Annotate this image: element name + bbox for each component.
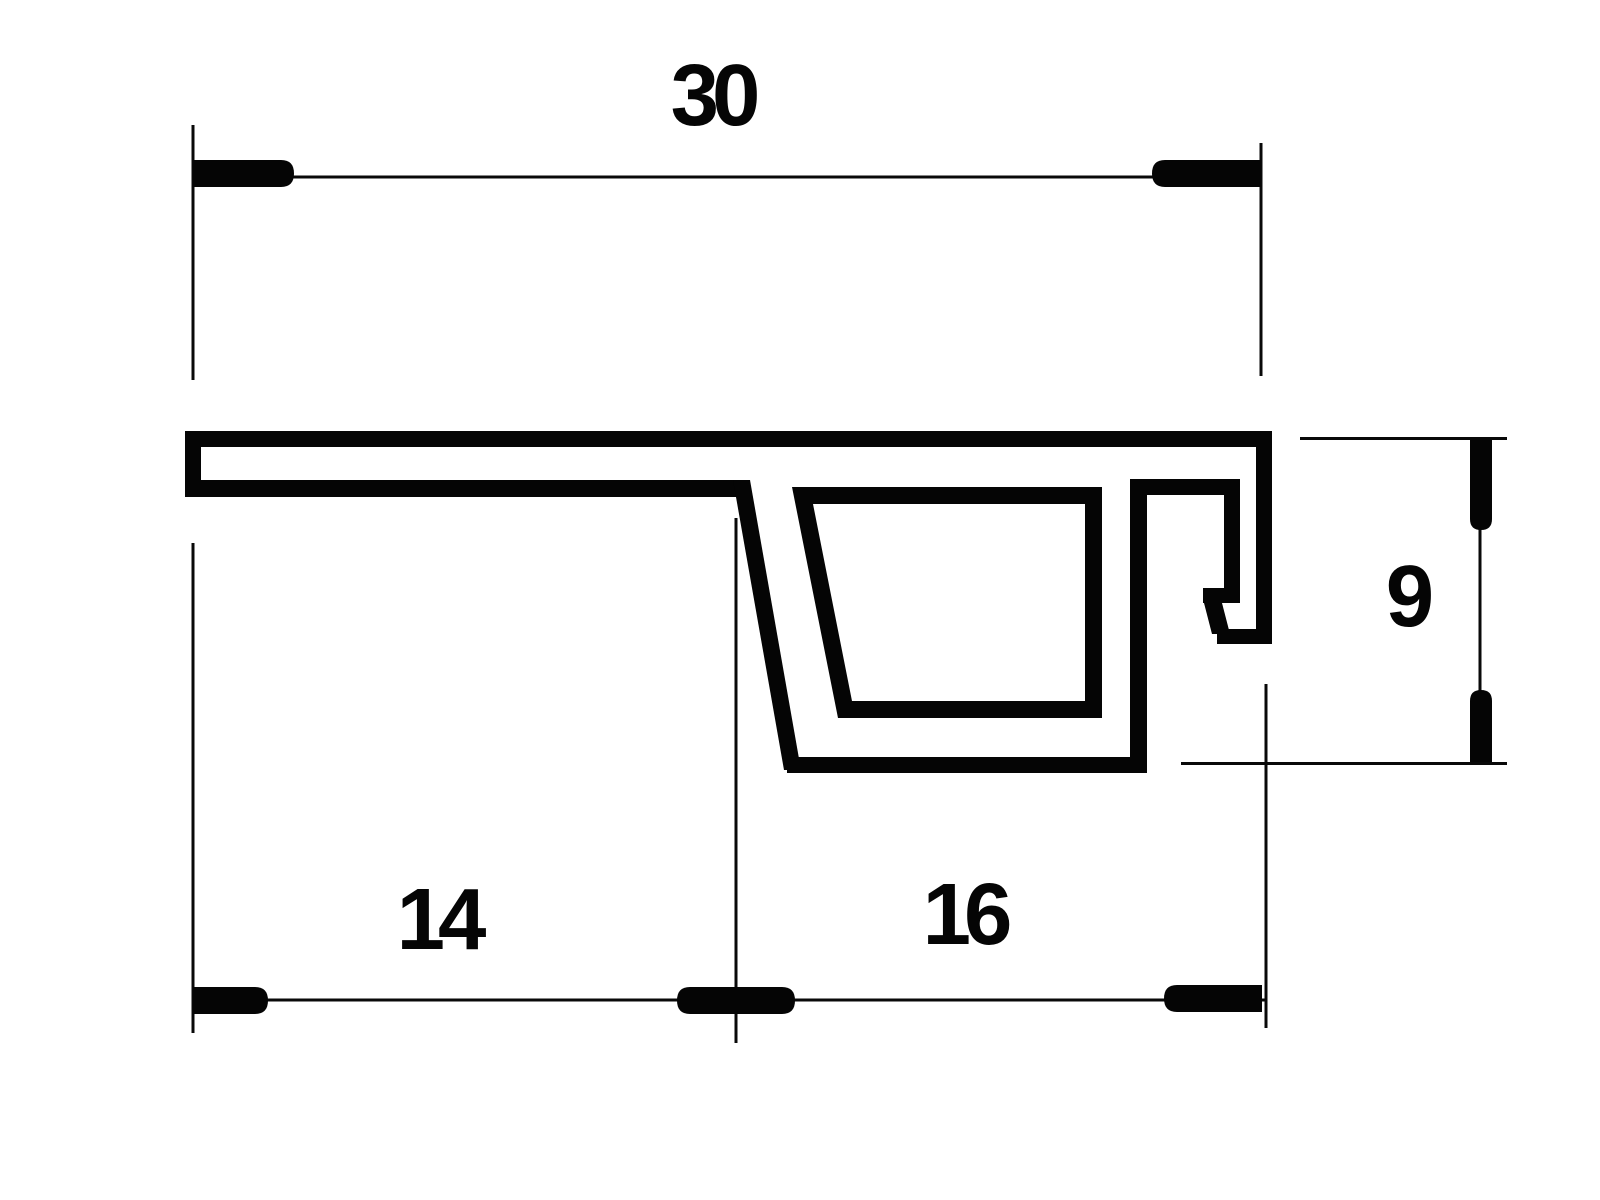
svg-text:16: 16 [923,866,1010,963]
svg-text:9: 9 [1386,548,1434,645]
svg-text:30: 30 [671,47,757,144]
svg-text:14: 14 [397,871,486,968]
